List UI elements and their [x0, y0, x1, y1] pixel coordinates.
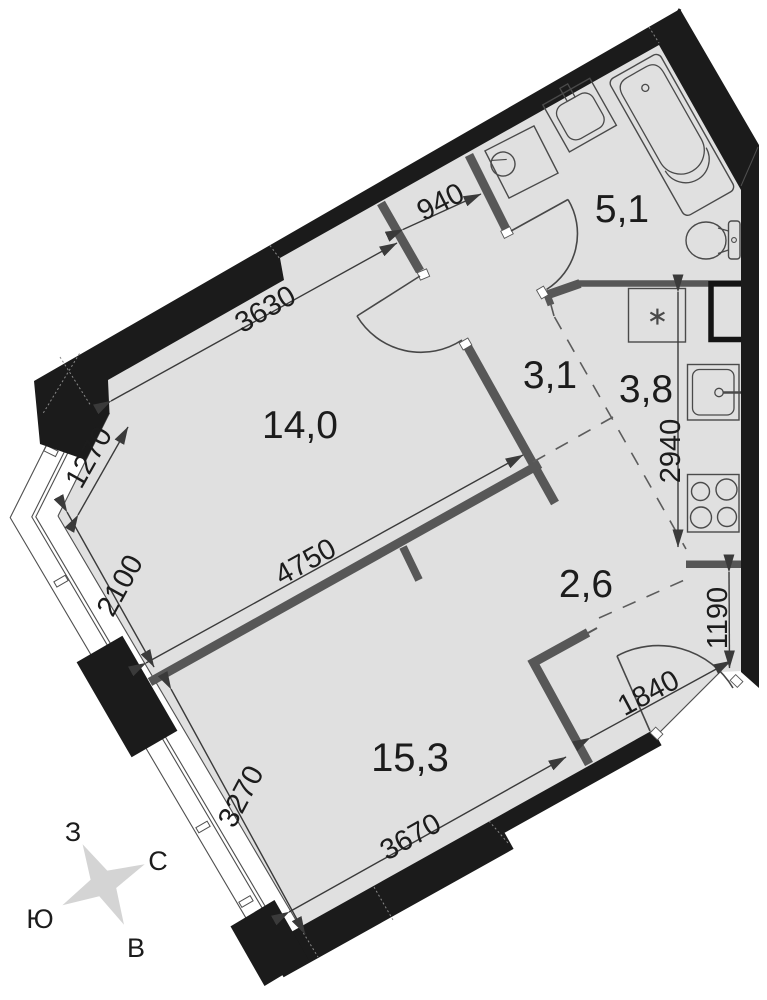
svg-text:С: С [148, 846, 168, 876]
svg-text:5,1: 5,1 [595, 188, 649, 231]
svg-text:15,3: 15,3 [371, 736, 449, 780]
svg-text:1190: 1190 [702, 587, 734, 649]
svg-text:3,1: 3,1 [523, 354, 577, 397]
svg-text:14,0: 14,0 [262, 404, 338, 447]
svg-text:З: З [65, 817, 81, 847]
svg-text:3,8: 3,8 [619, 368, 673, 411]
svg-text:В: В [127, 933, 145, 963]
svg-text:2940: 2940 [655, 419, 687, 484]
svg-text:Ю: Ю [26, 904, 53, 934]
svg-text:2,6: 2,6 [559, 563, 613, 606]
